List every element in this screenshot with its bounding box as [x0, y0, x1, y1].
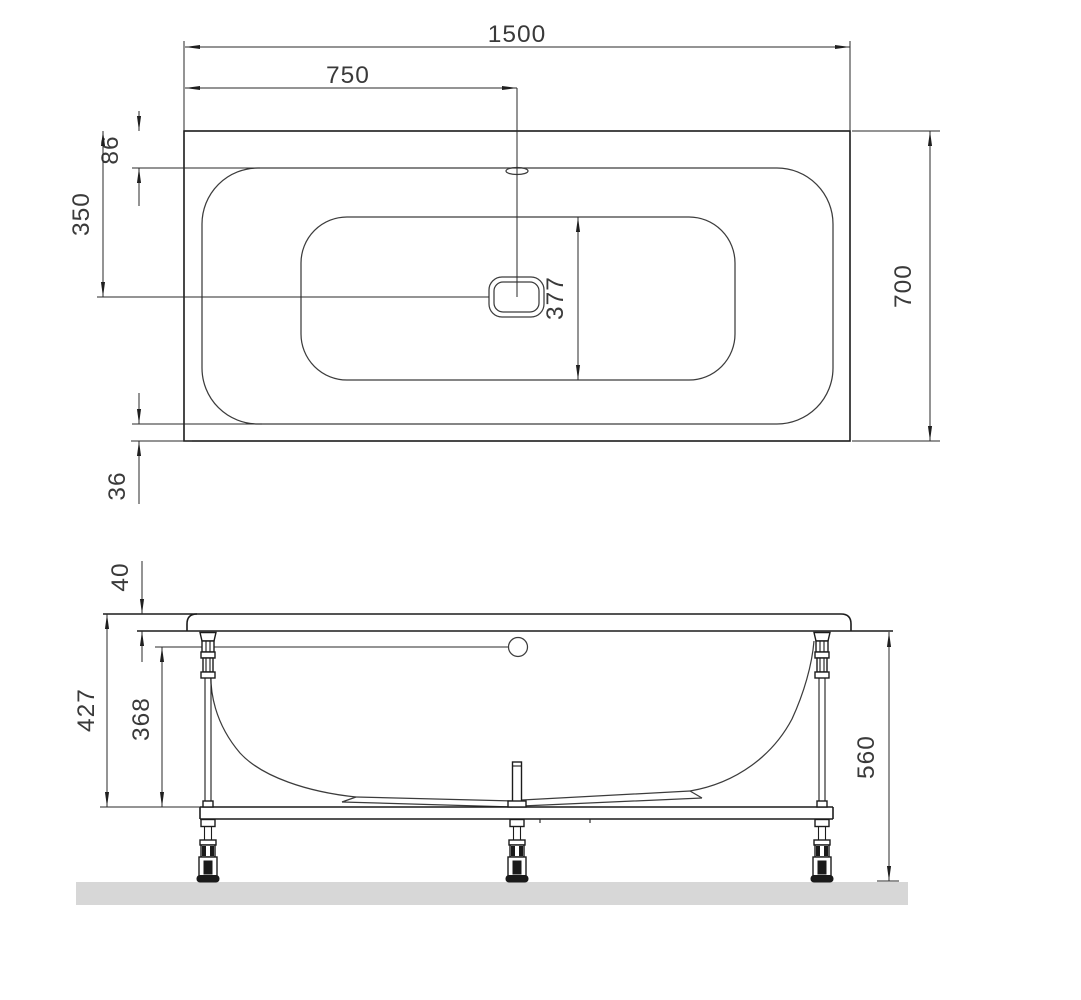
bathtub-dimension-drawing: 1500 750 86 350 377 700	[0, 0, 1081, 1000]
dim-overflow-to-frame: 368	[128, 647, 162, 807]
dim-label-40: 40	[107, 562, 134, 591]
dim-label-560: 560	[853, 735, 880, 779]
dim-drain-center-from-left: 750	[185, 62, 517, 89]
dim-overall-length: 1500	[185, 21, 850, 48]
dim-label-368: 368	[128, 697, 155, 741]
dim-basin-inner-width: 377	[542, 217, 578, 380]
dim-label-350: 350	[68, 192, 95, 236]
floor-surface	[76, 882, 908, 905]
top-view: 1500 750 86 350 377 700	[68, 21, 940, 504]
dim-label-86: 86	[97, 135, 124, 164]
dim-rim-bottom-to-floor: 560	[853, 632, 889, 881]
dim-rim-inset-bottom: 36	[104, 393, 139, 504]
top-view-extension-lines	[97, 41, 940, 441]
dim-label-1500: 1500	[488, 21, 547, 48]
dim-label-36: 36	[104, 471, 131, 500]
tub-basin-bottom-top-view	[301, 217, 735, 380]
tub-rim-side-view	[103, 614, 893, 631]
dim-rim-top-to-frame: 427	[73, 614, 107, 807]
dim-label-700: 700	[890, 264, 917, 308]
dim-label-427: 427	[73, 688, 100, 732]
dim-label-377: 377	[542, 276, 569, 320]
left-leg	[197, 633, 219, 883]
side-view: 40 427 368 560	[73, 561, 908, 905]
right-leg	[811, 633, 833, 883]
side-view-extension-lines	[100, 807, 899, 881]
dim-label-750: 750	[326, 62, 370, 89]
dim-rim-thickness: 40	[107, 561, 142, 662]
bathtub-technical-drawing-page: 1500 750 86 350 377 700	[0, 0, 1081, 1000]
dim-overall-width: 700	[890, 131, 930, 441]
middle-leg-and-drain-pipe	[506, 762, 528, 882]
overflow-hole	[509, 638, 528, 657]
